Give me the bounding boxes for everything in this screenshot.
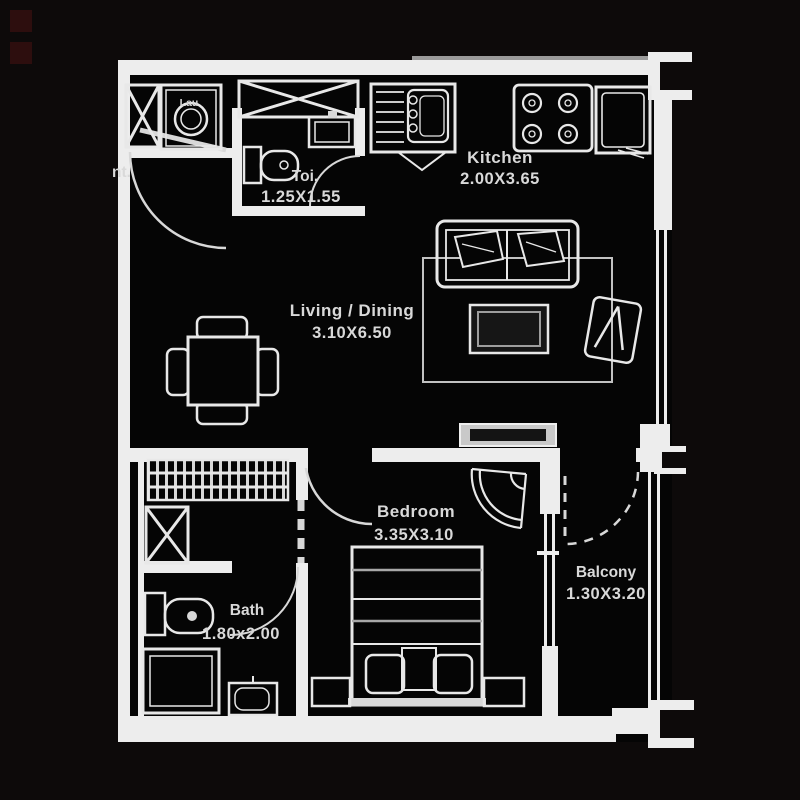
- coffee-table-icon: [470, 305, 548, 353]
- wall-balcony-pillar-top: [540, 448, 560, 514]
- living-window-line-2: [664, 228, 667, 426]
- balcony-dims: 1.30X3.20: [566, 585, 646, 603]
- bedroom-door-leaf: [302, 452, 308, 468]
- living-window-line-1: [656, 228, 659, 426]
- wall-toilet-left: [232, 108, 242, 216]
- tv-console-icon: [460, 424, 556, 446]
- bedroom-window-line-2: [552, 512, 555, 648]
- accent-square-1: [10, 10, 32, 32]
- balcony-rail-outer: [648, 470, 651, 714]
- bed-headboard: [348, 698, 486, 706]
- living-label: Living / Dining: [290, 301, 415, 320]
- wall-bottom: [118, 716, 616, 742]
- balcony-label: Balcony: [576, 564, 637, 581]
- bedroom-label: Bedroom: [377, 502, 455, 521]
- wall-left: [118, 60, 130, 742]
- wall-top: [118, 60, 672, 75]
- toilet-label: Toi.: [292, 168, 318, 185]
- wall-balcony-pillar-bottom: [542, 646, 558, 716]
- toilet-dims: 1.25X1.55: [261, 188, 341, 206]
- wall-toilet-bottom: [232, 206, 365, 216]
- living-dims: 3.10X6.50: [312, 324, 392, 342]
- column-marker-notch: [662, 452, 686, 468]
- entrance-label-partial: nt.: [112, 164, 131, 181]
- wardrobe-icon: [148, 460, 288, 500]
- bedroom-dims: 3.35X3.10: [374, 526, 454, 544]
- kitchen-dims: 2.00X3.65: [460, 170, 540, 188]
- bedroom-window-line-1: [544, 512, 547, 648]
- bath-dims: 1.80x2.00: [202, 625, 280, 643]
- wall-mid-center: [372, 448, 544, 462]
- wall-bath-right: [296, 563, 308, 718]
- kitchen-label: Kitchen: [467, 148, 533, 167]
- column-marker-notch: [660, 710, 694, 738]
- laundry-label: Lau: [180, 97, 199, 109]
- bedroom-window-tick: [537, 551, 559, 555]
- floor-plan-canvas: Kitchen 2.00X3.65 Living / Dining 3.10X6…: [0, 0, 800, 800]
- bath-label: Bath: [230, 602, 264, 619]
- accent-square-2: [10, 42, 32, 64]
- balcony-rail-inner: [657, 470, 660, 714]
- column-marker-notch: [660, 62, 692, 90]
- floor-plan: Kitchen 2.00X3.65 Living / Dining 3.10X6…: [0, 0, 800, 800]
